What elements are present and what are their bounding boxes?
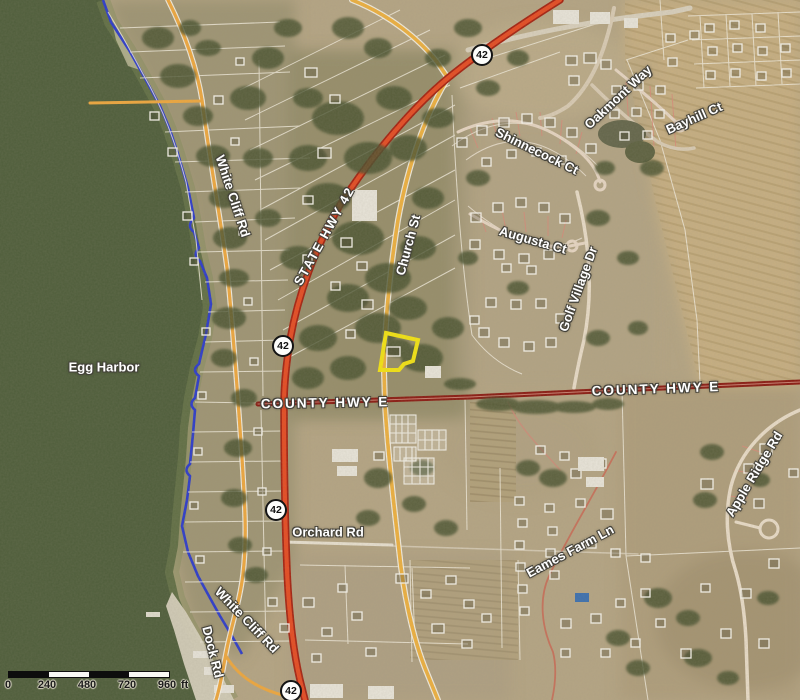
scale-segment bbox=[89, 672, 129, 677]
scale-segment bbox=[129, 672, 169, 677]
photo-grain bbox=[0, 0, 800, 700]
scale-bar bbox=[8, 671, 170, 678]
route-shield-42-north: 42 bbox=[471, 44, 493, 66]
route-shield-42-bottom: 42 bbox=[280, 680, 302, 700]
scale-tick-240: 240 bbox=[38, 679, 56, 691]
scale-unit: ft bbox=[181, 679, 188, 691]
map-canvas[interactable]: Egg Harbor White Cliff Rd STATE HWY 42 C… bbox=[0, 0, 800, 700]
route-shield-42-mid: 42 bbox=[272, 335, 294, 357]
scale-tick-0: 0 bbox=[5, 679, 11, 691]
scale-segment bbox=[49, 672, 89, 677]
route-shield-42-south: 42 bbox=[265, 499, 287, 521]
scale-tick-960: 960 bbox=[158, 679, 176, 691]
aerial-map-graphics bbox=[0, 0, 800, 700]
scale-tick-720: 720 bbox=[118, 679, 136, 691]
scale-tick-480: 480 bbox=[78, 679, 96, 691]
scale-segment bbox=[9, 672, 49, 677]
